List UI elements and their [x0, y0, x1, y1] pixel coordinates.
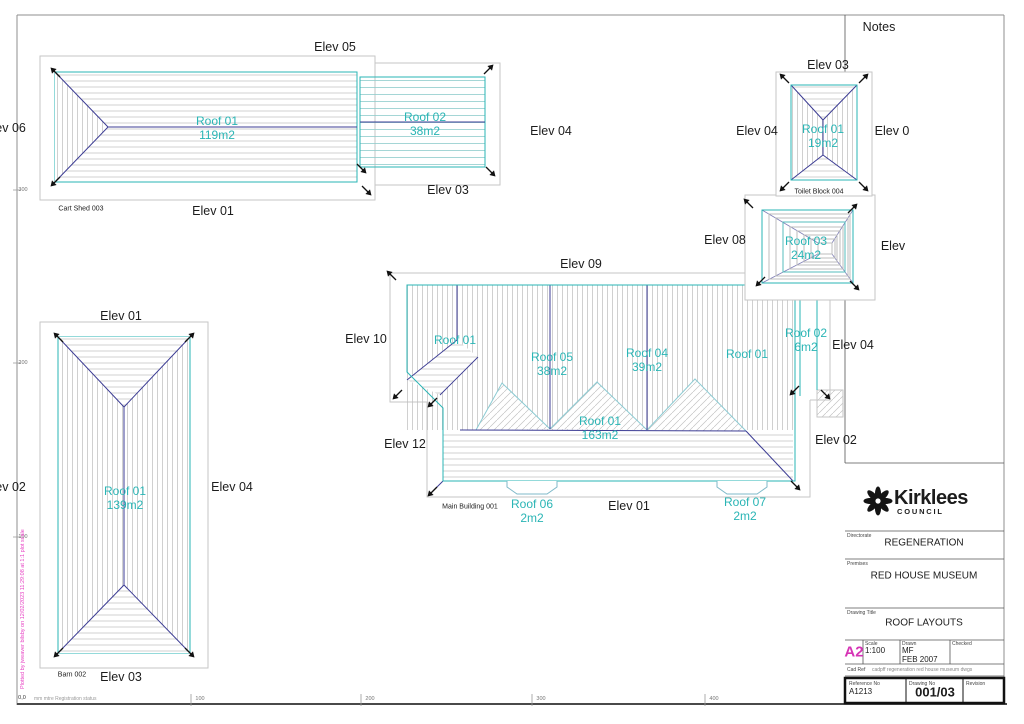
cartshed-elev-05: Elev 05: [314, 40, 356, 54]
cartshed-name: Cart Shed 003: [58, 206, 103, 213]
ruler-left-200: 200: [18, 360, 27, 366]
drawing-title-value: ROOF LAYOUTS: [885, 618, 963, 629]
barn-elev-02: Elev 02: [0, 480, 26, 494]
revision-label: Revision: [966, 681, 985, 687]
cartshed-elev-01: Elev 01: [192, 204, 234, 218]
main-roof06-label: Roof 06 2m2: [511, 497, 553, 525]
date-value: FEB 2007: [902, 655, 938, 664]
roof03-elev-08: Elev 08: [704, 233, 746, 247]
barn-elev-04: Elev 04: [211, 480, 253, 494]
main-name: Main Building 001: [442, 504, 498, 511]
checked-label: Checked: [952, 641, 972, 647]
toilet-roof-label: Roof 01 19m2: [802, 122, 844, 150]
toilet-elev-0: Elev 0: [875, 124, 910, 138]
barn-name: Barn 002: [58, 672, 86, 679]
kirklees-logo-icon: [864, 487, 893, 516]
main-elev-01: Elev 01: [608, 499, 650, 513]
roof03-elev: Elev: [881, 239, 905, 253]
notes-heading: Notes: [863, 20, 896, 34]
ruler-bottom-300: 300: [536, 696, 545, 702]
main-elev-12: Elev 12: [384, 437, 426, 451]
cartshed-elev-03: Elev 03: [427, 183, 469, 197]
ruler-bottom-400: 400: [709, 696, 718, 702]
barn-elev-03: Elev 03: [100, 670, 142, 684]
premises-value: RED HOUSE MUSEUM: [871, 571, 978, 582]
barn-roof-label: Roof 01 139m2: [104, 484, 146, 512]
premises-label: Premises: [847, 561, 868, 567]
sheet-size: A2: [844, 644, 863, 661]
main-building-plan: [387, 271, 844, 498]
main-roof05-label: Roof 05 38m2: [531, 350, 573, 378]
drawn-value: MF: [902, 646, 914, 655]
main-roof07-label: Roof 07 2m2: [724, 495, 766, 523]
directorate-value: REGENERATION: [884, 538, 963, 549]
main-elev-10: Elev 10: [345, 332, 387, 346]
cartshed-roof1-label: Roof 01 119m2: [196, 114, 238, 142]
roof03-label: Roof 03 24m2: [785, 234, 827, 262]
main-elev-09: Elev 09: [560, 257, 602, 271]
ruler-bottom-200: 200: [365, 696, 374, 702]
directorate-label: Directorate: [847, 533, 871, 539]
toilet-elev-03: Elev 03: [807, 58, 849, 72]
ruler-bottom-100: 100: [195, 696, 204, 702]
drawing-no-value: 001/03: [915, 685, 955, 700]
main-roof01-right-label: Roof 01: [726, 347, 768, 361]
main-roof04-label: Roof 04 39m2: [626, 346, 668, 374]
main-roof02-label: Roof 02 6m2: [785, 326, 827, 354]
drawing-sheet: Notes Elev 05 Elev 06 Elev 04 Elev 03 El…: [0, 0, 1024, 724]
ruler-origin: 0,0: [18, 695, 26, 701]
plot-stamp: Plotted by jweaver bilsby on 12/02/2023 …: [20, 529, 26, 689]
reference-value: A1213: [849, 687, 872, 696]
ruler-origin-note: mm mtre Registration status: [34, 696, 97, 702]
toilet-name: Toilet Block 004: [794, 189, 843, 196]
barn-elev-01: Elev 01: [100, 309, 142, 323]
main-elev-04: Elev 04: [832, 338, 874, 352]
main-roof-wing-label: Roof 01: [434, 333, 476, 347]
ruler-left-300: 300: [18, 187, 27, 193]
logo-subtext: COUNCIL: [897, 507, 944, 516]
cartshed-elev-06: Elev 06: [0, 121, 26, 135]
drawing-title-label: Drawing Title: [847, 610, 876, 616]
cartshed-roof2-label: Roof 02 38m2: [404, 110, 446, 138]
cad-ref-label: Cad Ref: [847, 667, 865, 673]
cartshed-elev-04: Elev 04: [530, 124, 572, 138]
cad-ref-value: cadpff regeneration red house museum dwg…: [872, 667, 972, 673]
toilet-elev-04: Elev 04: [736, 124, 778, 138]
main-roof01-center-label: Roof 01 163m2: [579, 414, 621, 442]
scale-value: 1:100: [865, 646, 885, 655]
main-elev-02: Elev 02: [815, 433, 857, 447]
